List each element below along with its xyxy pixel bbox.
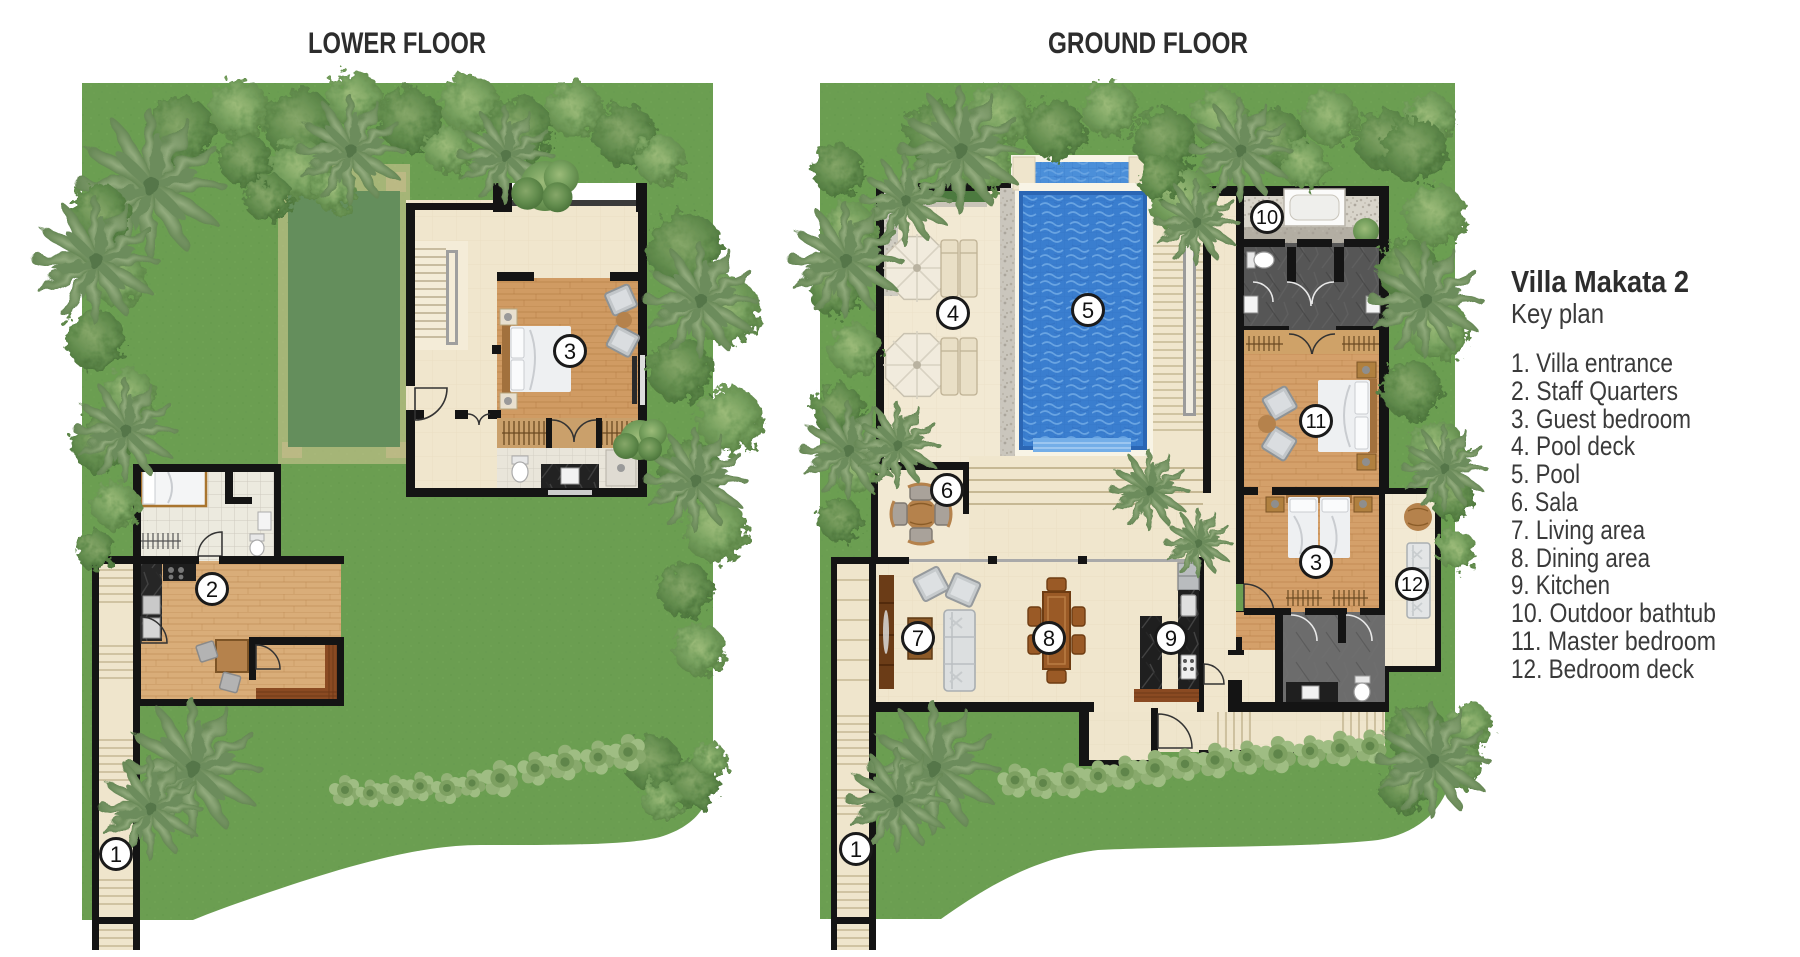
svg-text:11: 11 [1306,411,1327,433]
svg-text:5. Pool: 5. Pool [1511,459,1580,489]
svg-text:2. Staff Quarters: 2. Staff Quarters [1511,376,1678,406]
svg-text:9: 9 [1165,626,1177,651]
svg-text:3: 3 [1310,550,1322,575]
svg-text:7. Living area: 7. Living area [1511,515,1646,545]
svg-text:1: 1 [110,842,122,867]
svg-text:10: 10 [1256,207,1278,229]
svg-text:6: 6 [941,478,953,503]
svg-text:2: 2 [206,577,218,602]
svg-text:Villa Makata 2: Villa Makata 2 [1511,264,1689,299]
svg-text:9. Kitchen: 9. Kitchen [1511,570,1610,600]
svg-text:8: 8 [1043,626,1055,651]
svg-text:5: 5 [1082,298,1094,323]
svg-text:12. Bedroom deck: 12. Bedroom deck [1511,654,1694,684]
svg-text:GROUND FLOOR: GROUND FLOOR [1048,27,1248,60]
svg-text:11. Master bedroom: 11. Master bedroom [1511,626,1716,656]
svg-text:7: 7 [912,626,924,651]
svg-text:12: 12 [1401,574,1423,596]
svg-text:4: 4 [947,301,959,326]
svg-text:3: 3 [564,339,576,364]
svg-text:8. Dining area: 8. Dining area [1511,543,1651,573]
svg-text:LOWER FLOOR: LOWER FLOOR [308,27,486,60]
svg-text:1: 1 [850,837,862,862]
svg-text:Key plan: Key plan [1511,298,1604,329]
svg-text:4. Pool deck: 4. Pool deck [1511,431,1635,461]
svg-text:3. Guest bedroom: 3. Guest bedroom [1511,404,1691,434]
svg-text:10. Outdoor bathtub: 10. Outdoor bathtub [1511,598,1716,628]
svg-text:1. Villa entrance: 1. Villa entrance [1511,348,1673,378]
svg-text:6. Sala: 6. Sala [1511,487,1579,517]
